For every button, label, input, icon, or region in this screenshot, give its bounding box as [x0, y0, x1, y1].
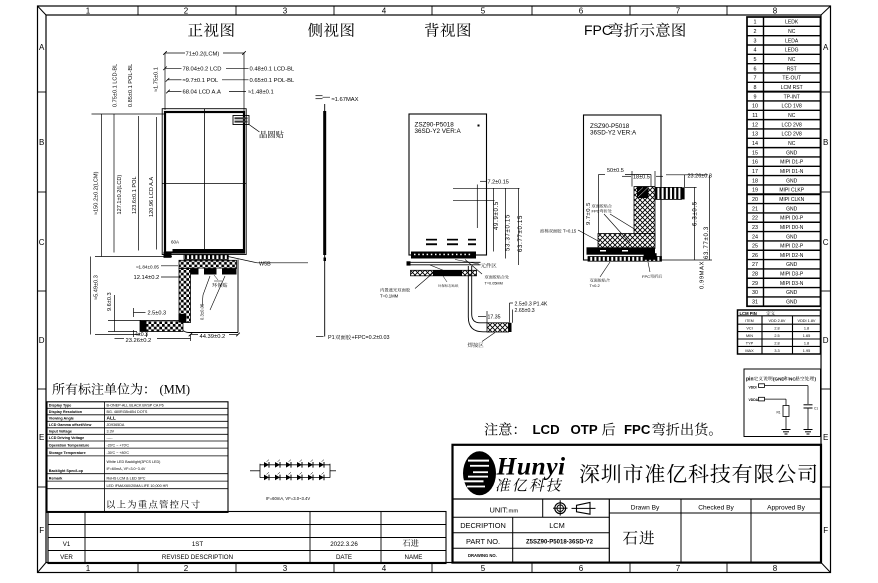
svg-text:FPC: FPC	[642, 274, 650, 279]
svg-text:1.8: 1.8	[804, 327, 809, 331]
svg-text:E: E	[823, 433, 828, 442]
svg-text:GND: GND	[786, 150, 798, 156]
svg-text:2.8: 2.8	[774, 327, 779, 331]
svg-text:1: 1	[86, 564, 91, 573]
svg-text:≈1.48±0.1: ≈1.48±0.1	[248, 90, 274, 96]
svg-text:3: 3	[283, 564, 288, 573]
svg-text:2.8: 2.8	[774, 341, 779, 345]
svg-text:1ST: 1ST	[192, 541, 204, 548]
svg-text:MIPI D1-N: MIPI D1-N	[780, 169, 804, 175]
svg-text:26: 26	[752, 253, 758, 259]
svg-text:FPC: FPC	[584, 22, 612, 38]
svg-text:23.26±0.3: 23.26±0.3	[688, 173, 712, 179]
svg-text:T=0.15: T=0.15	[563, 229, 577, 234]
svg-text:mm: mm	[509, 508, 519, 514]
svg-text:GND: GND	[786, 206, 798, 212]
svg-text:6: 6	[579, 564, 584, 573]
svg-text:LCD Driving Voltage: LCD Driving Voltage	[49, 436, 84, 440]
svg-text:C: C	[39, 238, 45, 247]
svg-text:JD9365DA: JD9365DA	[107, 423, 125, 427]
svg-text:4: 4	[754, 48, 757, 54]
svg-text:P1: P1	[328, 335, 335, 341]
svg-text:2.5±0.3 P1.4K: 2.5±0.3 P1.4K	[515, 301, 548, 307]
svg-text:MIPI CLKP: MIPI CLKP	[779, 188, 804, 194]
svg-text:23: 23	[752, 225, 758, 231]
svg-text:LCD 2V8: LCD 2V8	[782, 122, 803, 128]
svg-text:T=0.1MM: T=0.1MM	[380, 294, 399, 299]
svg-text:MIPI D0-P: MIPI D0-P	[780, 216, 804, 222]
svg-text:7: 7	[754, 76, 757, 82]
svg-text:FPC: FPC	[624, 422, 651, 437]
svg-text:6: 6	[754, 66, 757, 72]
svg-text:Storage Temperature: Storage Temperature	[49, 451, 86, 455]
svg-text:0.48±0.1 LCD-BL: 0.48±0.1 LCD-BL	[250, 66, 296, 72]
svg-text:2: 2	[184, 7, 189, 16]
svg-text:22: 22	[752, 216, 758, 222]
svg-text:D: D	[39, 336, 45, 345]
svg-text:B-ONEP-ALL BLACK BVSP CA P6: B-ONEP-ALL BLACK BVSP CA P6	[107, 404, 164, 408]
svg-text:≈5.49±0.3: ≈5.49±0.3	[94, 275, 100, 300]
svg-text:White LED Backlight(3PCS LED): White LED Backlight(3PCS LED)	[107, 460, 161, 464]
svg-text:31: 31	[752, 300, 758, 306]
svg-text:(MM): (MM)	[160, 382, 191, 396]
svg-text:NC: NC	[788, 141, 796, 147]
svg-text:TE-OUT: TE-OUT	[782, 76, 801, 82]
svg-text:C1: C1	[814, 407, 818, 411]
svg-text:16: 16	[752, 160, 758, 166]
svg-text:63.77±0.15: 63.77±0.15	[518, 215, 524, 252]
svg-text:7: 7	[676, 564, 681, 573]
svg-text:LEDA: LEDA	[785, 38, 799, 44]
svg-text:2022.3.26: 2022.3.26	[330, 541, 358, 548]
svg-text:≈9.7±0.1 POL: ≈9.7±0.1 POL	[183, 78, 219, 84]
svg-text:18: 18	[752, 178, 758, 184]
svg-text:MIPI D2-P: MIPI D2-P	[780, 244, 804, 250]
svg-text:GND: GND	[786, 262, 798, 268]
svg-text:Checked By: Checked By	[698, 504, 734, 511]
svg-text:Z5SZ90-P5018-36SD-Y2: Z5SZ90-P5018-36SD-Y2	[526, 540, 594, 546]
svg-text:B: B	[823, 138, 828, 147]
svg-text:V1: V1	[63, 541, 71, 548]
svg-text:2.5: 2.5	[774, 334, 779, 338]
svg-text:25: 25	[752, 244, 758, 250]
svg-text:127.1±0.2(LCD): 127.1±0.2(LCD)	[117, 175, 123, 215]
svg-text:49.9±0.5: 49.9±0.5	[494, 201, 500, 230]
svg-text:LCM RST: LCM RST	[781, 85, 803, 91]
svg-text:ITEM: ITEM	[745, 319, 754, 323]
svg-text:15: 15	[752, 150, 758, 156]
svg-text:VDD 2.8V: VDD 2.8V	[769, 319, 786, 323]
svg-text:28: 28	[752, 272, 758, 278]
svg-text:10: 10	[752, 104, 758, 110]
svg-text:LCD 2V8: LCD 2V8	[782, 132, 803, 138]
svg-text:LEDK: LEDK	[785, 20, 799, 26]
svg-text:9.6±0.3: 9.6±0.3	[107, 292, 113, 311]
svg-text:-20'C ~ +70'C: -20'C ~ +70'C	[107, 443, 130, 447]
svg-text:TYP: TYP	[746, 341, 754, 345]
svg-text:1.95: 1.95	[803, 349, 810, 353]
svg-text:A: A	[823, 43, 829, 52]
svg-text:36SD-Y2 VER:A: 36SD-Y2 VER:A	[590, 130, 637, 137]
svg-text:8: 8	[773, 564, 778, 573]
svg-text:1.65: 1.65	[803, 334, 810, 338]
svg-text:≈1.75±0.1: ≈1.75±0.1	[154, 67, 160, 92]
svg-text:E: E	[39, 433, 44, 442]
svg-text:Input Voltage: Input Voltage	[49, 430, 72, 434]
svg-text:Drawn By: Drawn By	[631, 504, 660, 511]
svg-text:7.2±0.15: 7.2±0.15	[488, 179, 509, 185]
svg-text:MIPI D3-N: MIPI D3-N	[780, 281, 804, 287]
svg-text:LED IFMAX60/20MA LIFE 10,000 H: LED IFMAX60/20MA LIFE 10,000 HR	[107, 484, 169, 488]
svg-text:23.26±0.2: 23.26±0.2	[126, 338, 152, 344]
svg-text:4: 4	[382, 564, 387, 573]
svg-text:0.75±0.1 LCD-BL: 0.75±0.1 LCD-BL	[113, 64, 119, 107]
svg-text:9: 9	[754, 94, 757, 100]
svg-text:IF=60mA, VF=3.0~3.4V: IF=60mA, VF=3.0~3.4V	[266, 496, 310, 501]
svg-text:0.3±0.05: 0.3±0.05	[200, 303, 205, 320]
svg-text:8: 8	[754, 85, 757, 91]
svg-text:8: 8	[773, 7, 778, 16]
svg-text:RoHS LCM & LED SPC: RoHS LCM & LED SPC	[107, 476, 146, 480]
svg-text:5: 5	[481, 564, 486, 573]
svg-text:1: 1	[754, 20, 757, 26]
svg-text:53.37±0.15: 53.37±0.15	[506, 214, 512, 251]
svg-text:2: 2	[184, 564, 189, 573]
svg-text:18±0.5: 18±0.5	[633, 174, 650, 180]
svg-text:R1: R1	[777, 411, 781, 415]
svg-text:17: 17	[752, 169, 758, 175]
svg-text:MAX: MAX	[745, 349, 754, 353]
svg-text:LEDG: LEDG	[785, 48, 799, 54]
svg-text:5: 5	[754, 57, 757, 63]
svg-text:0.85±0.1 POL-BL: 0.85±0.1 POL-BL	[128, 64, 134, 107]
svg-text:4: 4	[382, 7, 387, 16]
svg-text:29: 29	[752, 281, 758, 287]
svg-text:3.3: 3.3	[774, 349, 779, 353]
svg-text:ALL: ALL	[107, 416, 116, 422]
svg-text:44.39±0.2: 44.39±0.2	[200, 334, 226, 340]
svg-text:Display Type: Display Type	[49, 404, 71, 408]
svg-text:71±0.2(LCM): 71±0.2(LCM)	[186, 51, 220, 57]
svg-text:20: 20	[752, 197, 758, 203]
svg-text:BG. 480RGBx854 DOTS: BG. 480RGBx854 DOTS	[107, 410, 148, 414]
svg-text:F: F	[823, 526, 828, 535]
svg-text:NAME: NAME	[405, 554, 423, 561]
svg-text:MIPI D1-P: MIPI D1-P	[780, 160, 804, 166]
svg-text:-30'C ~ +80'C: -30'C ~ +80'C	[107, 451, 130, 455]
svg-text:Remark: Remark	[49, 476, 63, 480]
svg-text:C: C	[823, 238, 829, 247]
svg-text:OTP: OTP	[571, 422, 598, 437]
svg-text:MIPI CLKN: MIPI CLKN	[779, 197, 804, 203]
svg-text:GND: GND	[786, 234, 798, 240]
svg-text:pin: pin	[746, 376, 754, 382]
svg-text:19: 19	[752, 188, 758, 194]
svg-text:6: 6	[579, 7, 584, 16]
svg-text:GND: GND	[786, 300, 798, 306]
svg-text:PART NO.: PART NO.	[466, 537, 500, 546]
svg-text:T=0.05MM: T=0.05MM	[485, 282, 503, 286]
svg-text:F: F	[39, 526, 44, 535]
svg-text:NC: NC	[788, 57, 796, 63]
svg-text:REVISED DESCRIPTION: REVISED DESCRIPTION	[162, 554, 233, 561]
svg-text:LCD Gamma offset/View: LCD Gamma offset/View	[49, 423, 92, 427]
svg-text:GND: GND	[786, 178, 798, 184]
svg-text:123.6±0.1 POL: 123.6±0.1 POL	[132, 176, 138, 214]
svg-text:63.77±0.3: 63.77±0.3	[704, 226, 710, 259]
svg-text:(GND: (GND	[773, 376, 785, 381]
svg-text:Approved By: Approved By	[767, 504, 805, 511]
svg-text:17.35: 17.35	[488, 315, 501, 321]
svg-text:-----: -----	[107, 436, 114, 440]
svg-text:B: B	[39, 138, 44, 147]
svg-text:IF=60mA, VF=3.0~3.4V: IF=60mA, VF=3.0~3.4V	[107, 467, 146, 471]
svg-text:VDDA: VDDA	[749, 398, 759, 402]
svg-text:68.04 LCD A.A: 68.04 LCD A.A	[183, 90, 221, 96]
svg-text:NC: NC	[789, 376, 796, 381]
svg-text:DECRIPTION: DECRIPTION	[460, 521, 506, 530]
svg-text:GND: GND	[786, 290, 798, 296]
svg-text:VDDI 1.8V: VDDI 1.8V	[798, 319, 816, 323]
svg-text:2: 2	[754, 29, 757, 35]
svg-text:14: 14	[752, 141, 758, 147]
svg-text:2.65±0.3: 2.65±0.3	[515, 308, 535, 314]
svg-text:D: D	[823, 336, 829, 345]
svg-text:60A: 60A	[171, 240, 179, 245]
svg-text:5: 5	[481, 7, 486, 16]
svg-text:+FPC=0.2±0.03: +FPC=0.2±0.03	[352, 335, 390, 341]
svg-text:9.7±0.5: 9.7±0.5	[586, 202, 592, 225]
svg-text:12: 12	[752, 122, 758, 128]
svg-text:30: 30	[752, 290, 758, 296]
svg-text:A: A	[39, 43, 45, 52]
svg-text:50±0.5: 50±0.5	[607, 168, 624, 174]
svg-text:MIPI D0-N: MIPI D0-N	[780, 225, 804, 231]
svg-text:LCD 1V8: LCD 1V8	[782, 104, 803, 110]
svg-text:NC: NC	[788, 29, 796, 35]
svg-text:120.96 LCD A.A: 120.96 LCD A.A	[149, 177, 155, 217]
svg-text:DATE: DATE	[336, 554, 352, 561]
svg-text:Viewing Angle: Viewing Angle	[49, 417, 74, 421]
svg-text:VCI: VCI	[746, 327, 752, 331]
svg-text:1: 1	[86, 7, 91, 16]
svg-text:27: 27	[752, 262, 758, 268]
svg-text:MIPI D2-N: MIPI D2-N	[780, 253, 804, 259]
svg-text:0.65±0.1 POL-BL: 0.65±0.1 POL-BL	[250, 78, 296, 84]
svg-text:MIN: MIN	[746, 334, 753, 338]
svg-text:6.3±0.5: 6.3±0.5	[693, 201, 699, 226]
svg-text:78.04±0.2 LCD: 78.04±0.2 LCD	[183, 66, 222, 72]
svg-text:36SD-Y2 VER:A: 36SD-Y2 VER:A	[415, 128, 462, 135]
svg-text:Backlight Spec/Lop: Backlight Spec/Lop	[49, 469, 84, 473]
svg-text:UNIT:: UNIT:	[490, 505, 508, 514]
svg-text:≈150.2±0.2(LCM): ≈150.2±0.2(LCM)	[94, 171, 100, 215]
svg-text:≈1.67MAX: ≈1.67MAX	[332, 97, 359, 103]
svg-text:W5B: W5B	[259, 261, 271, 267]
svg-text:≈1.84±0.05: ≈1.84±0.05	[136, 264, 159, 269]
svg-text:13: 13	[752, 132, 758, 138]
svg-text:0.99MAX: 0.99MAX	[700, 261, 706, 289]
svg-text:2.5±0.3: 2.5±0.3	[148, 311, 167, 317]
svg-text:7: 7	[676, 7, 681, 16]
svg-text:FPC: FPC	[592, 209, 600, 214]
svg-text:Operation Temperature: Operation Temperature	[49, 443, 90, 447]
svg-text:DRAWING NO.: DRAWING NO.	[468, 553, 497, 558]
svg-text:Hunyi: Hunyi	[496, 452, 566, 481]
svg-text:3: 3	[754, 38, 757, 44]
svg-text:1.8: 1.8	[804, 341, 809, 345]
svg-text:11: 11	[752, 113, 758, 119]
svg-text:T≈0.2: T≈0.2	[590, 283, 601, 288]
svg-text:TP-INT: TP-INT	[784, 94, 800, 100]
svg-text:12.14±0.2: 12.14±0.2	[134, 275, 160, 281]
svg-text:24: 24	[752, 234, 758, 240]
svg-text:3.3V: 3.3V	[107, 430, 115, 434]
svg-text:RST: RST	[787, 66, 797, 72]
svg-text:21: 21	[752, 206, 758, 212]
svg-text:3: 3	[283, 7, 288, 16]
svg-text:VER: VER	[60, 554, 73, 561]
svg-text:VDDI: VDDI	[749, 385, 757, 389]
svg-text:MIPI D3-P: MIPI D3-P	[780, 272, 804, 278]
svg-text:Display Resolution: Display Resolution	[49, 410, 83, 414]
svg-text:NC: NC	[788, 113, 796, 119]
svg-text:LCM PIN: LCM PIN	[740, 311, 757, 316]
svg-text:LCD: LCD	[533, 422, 560, 437]
svg-text:LCM: LCM	[549, 521, 565, 530]
